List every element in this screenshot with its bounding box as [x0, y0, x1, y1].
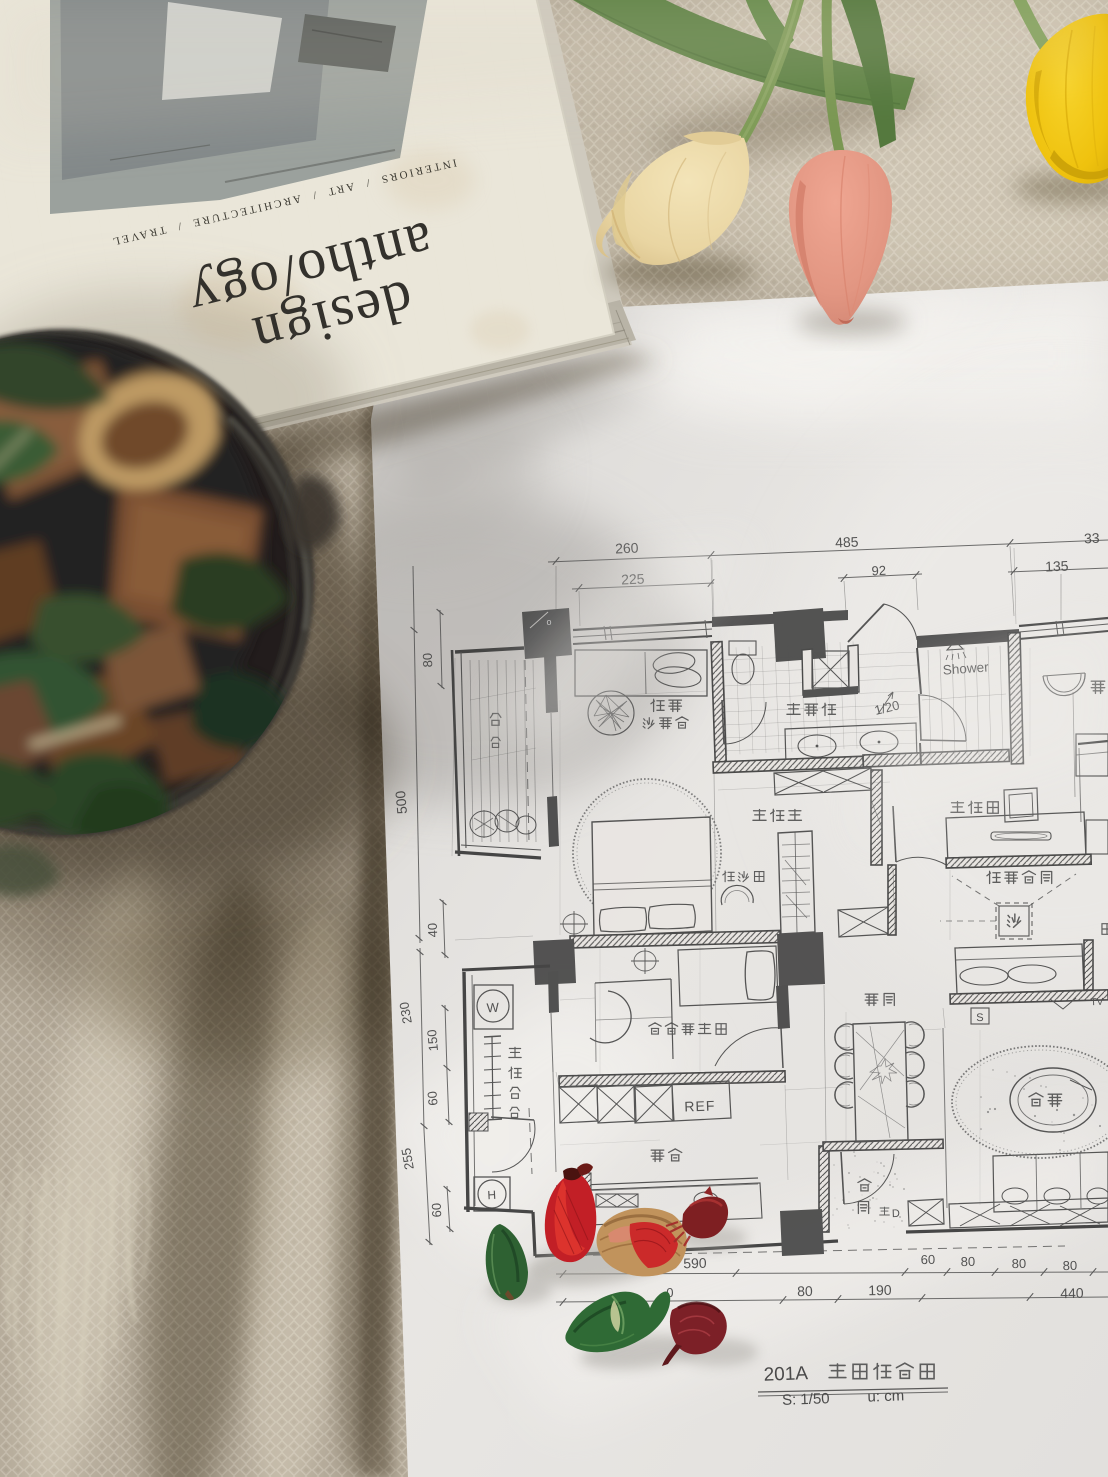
svg-text:o: o [546, 617, 551, 627]
svg-text:TV: TV [1090, 997, 1103, 1008]
svg-text:201A: 201A [763, 1363, 808, 1386]
svg-text:60: 60 [429, 1203, 444, 1218]
svg-text:40: 40 [425, 923, 440, 938]
svg-text:33: 33 [1084, 530, 1100, 547]
svg-text:80: 80 [797, 1283, 813, 1299]
svg-text:150: 150 [424, 1029, 441, 1052]
svg-text:190: 190 [868, 1282, 892, 1298]
svg-text:80: 80 [420, 653, 435, 668]
svg-text:S: S [976, 1012, 984, 1024]
svg-text:D: D [892, 1208, 900, 1220]
svg-text:92: 92 [871, 563, 886, 579]
svg-text:80: 80 [961, 1254, 976, 1269]
svg-text:W: W [486, 1000, 500, 1016]
svg-text:S: 1/50: S: 1/50 [782, 1390, 830, 1409]
svg-text:260: 260 [615, 539, 639, 556]
svg-text:60: 60 [424, 1091, 440, 1107]
svg-text:u: cm: u: cm [867, 1387, 904, 1405]
svg-text:440: 440 [1060, 1285, 1084, 1301]
svg-text:H: H [487, 1188, 496, 1202]
svg-text:590: 590 [683, 1255, 707, 1271]
svg-text:135: 135 [1045, 557, 1069, 574]
svg-text:500: 500 [392, 790, 410, 815]
svg-text:485: 485 [835, 533, 859, 550]
svg-text:80: 80 [1012, 1256, 1027, 1271]
svg-text:REF: REF [684, 1097, 716, 1114]
svg-text:60: 60 [921, 1252, 936, 1267]
svg-text:80: 80 [1063, 1258, 1078, 1273]
